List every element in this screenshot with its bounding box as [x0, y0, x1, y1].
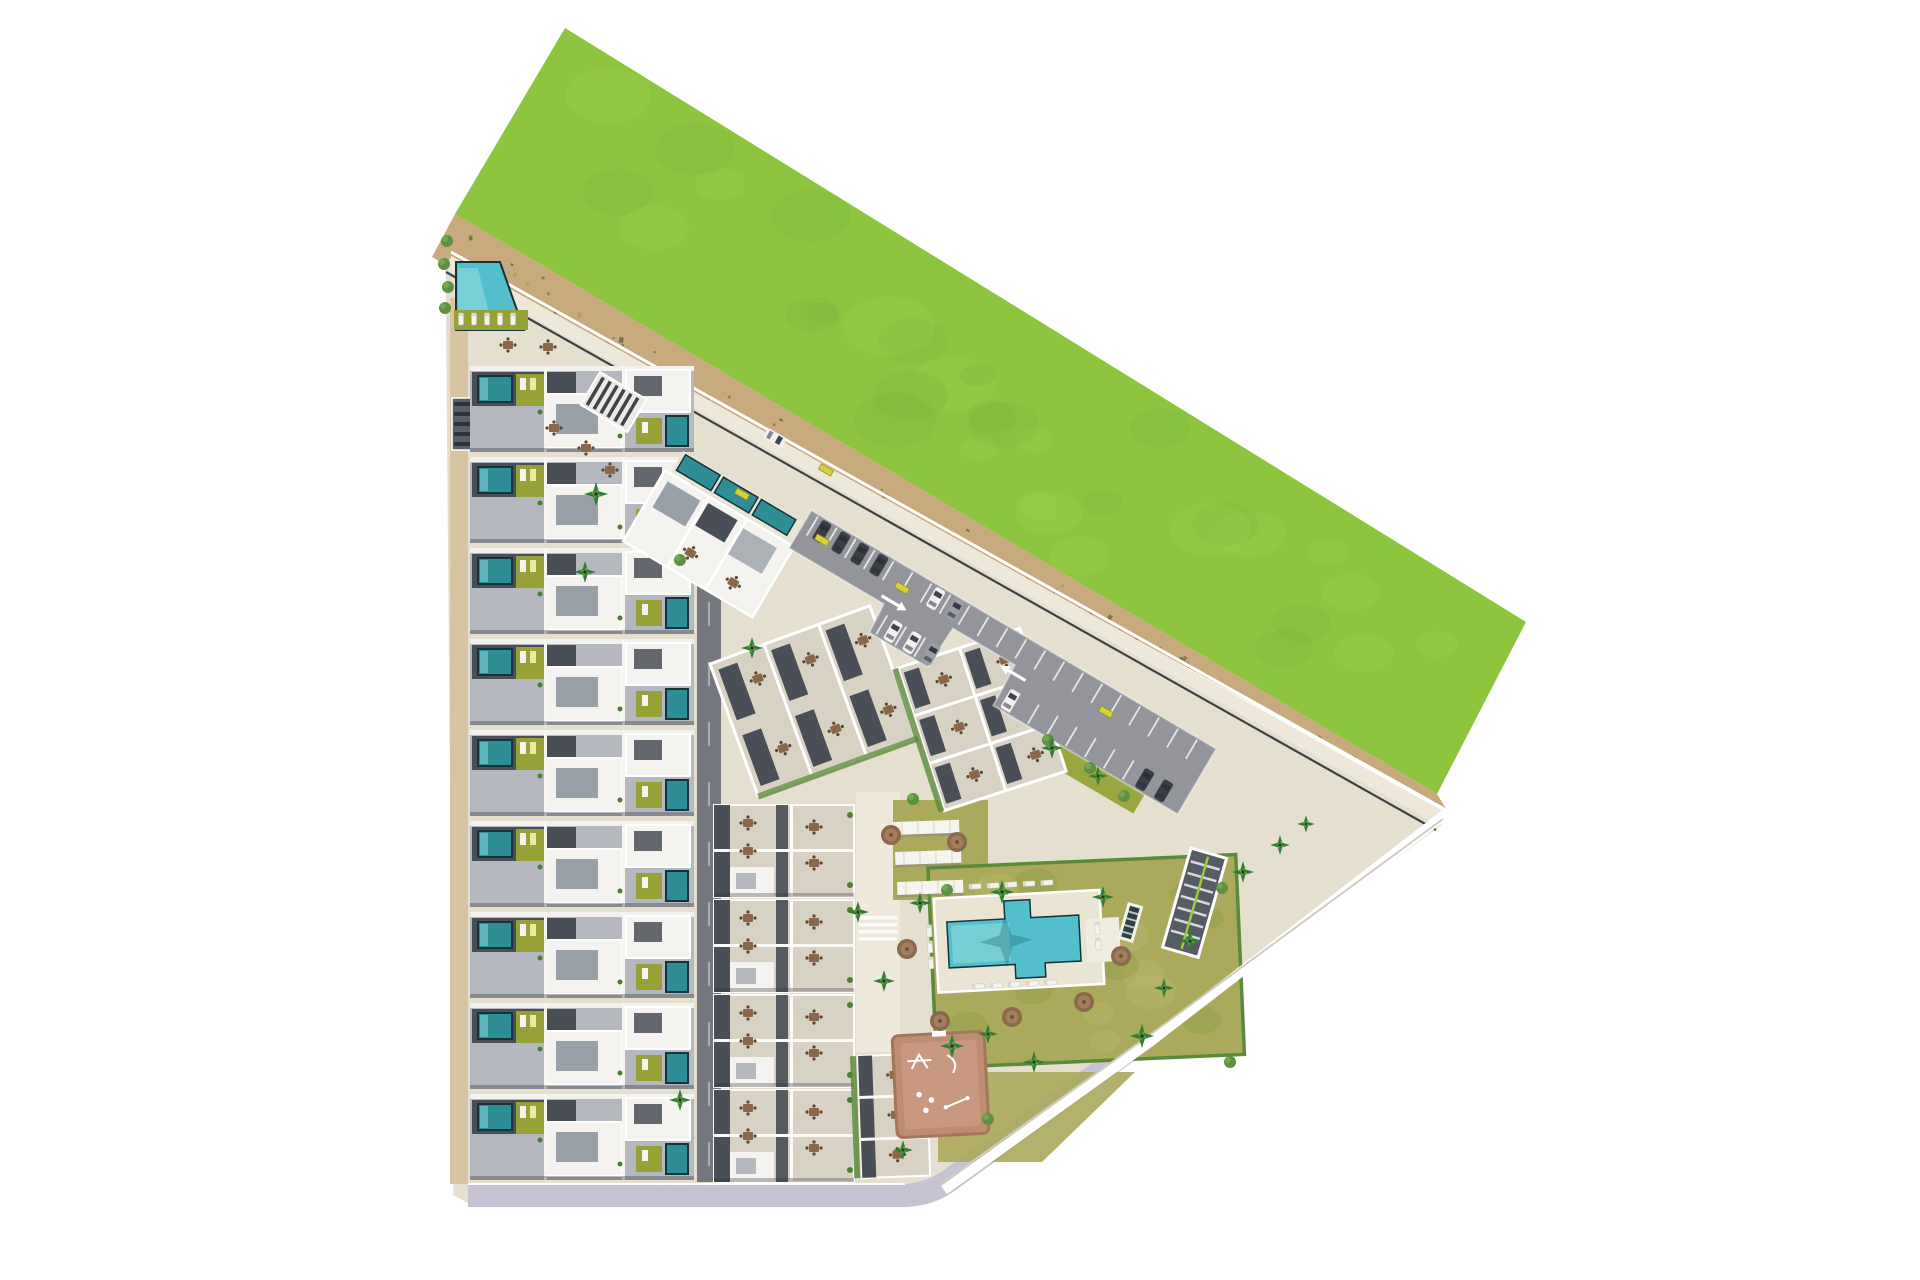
parasol-tree [1074, 992, 1094, 1012]
townhouse-row-inner [714, 805, 854, 897]
site-plan-render: Aerial 3D site-plan render of a coastal … [0, 0, 1920, 1280]
pergola-shade [895, 850, 962, 868]
garden-shrub [1084, 762, 1096, 774]
sun-lounger [1095, 922, 1101, 934]
sun-lounger [1008, 982, 1020, 988]
townhouse-row [470, 1094, 694, 1180]
parasol-tree [1111, 946, 1131, 966]
townhouse-row-inner [714, 1090, 854, 1182]
parasol-tree [897, 939, 917, 959]
sun-lounger [1041, 880, 1053, 886]
sun-lounger [1023, 881, 1035, 887]
screenshot-canvas: Aerial 3D site-plan render of a coastal … [0, 0, 1920, 1280]
sun-lounger [969, 884, 981, 890]
sun-lounger [1095, 938, 1101, 950]
townhouse-row [470, 730, 694, 816]
pergola-shade [893, 820, 960, 838]
corner-lawn [454, 310, 528, 330]
sun-lounger [511, 313, 516, 325]
sun-lounger [485, 313, 490, 325]
pergola-shade [897, 880, 964, 898]
pergola-shades [893, 820, 964, 898]
townhouse-row [470, 639, 694, 725]
sun-lounger [472, 313, 477, 325]
garden-shrub [907, 793, 919, 805]
sun-lounger [498, 313, 503, 325]
townhouse-row [470, 912, 694, 998]
garden-shrub [982, 1113, 994, 1125]
townhouse-row [470, 1003, 694, 1089]
garden-shrub [941, 884, 953, 896]
sun-lounger [928, 957, 934, 969]
sun-lounger [1026, 981, 1038, 987]
sun-lounger [990, 983, 1002, 989]
garden-shrub [1216, 882, 1228, 894]
sun-lounger [987, 883, 999, 889]
parasol-tree [947, 832, 967, 852]
sun-lounger [1005, 882, 1017, 888]
townhouse-row [470, 366, 694, 452]
sun-lounger [1044, 980, 1056, 986]
garden-shrub [438, 258, 450, 270]
sun-lounger [926, 925, 932, 937]
townhouse-row-inner [714, 900, 854, 992]
playground-gate [932, 1030, 946, 1037]
townhouse-row [470, 821, 694, 907]
sun-lounger [972, 984, 984, 990]
townhouse-row-inner [714, 995, 854, 1087]
garden-shrub [1118, 790, 1130, 802]
sun-lounger [459, 313, 464, 325]
garden-shrub [1224, 1056, 1236, 1068]
playground [892, 1028, 989, 1138]
parasol-tree [881, 825, 901, 845]
parasol-tree [1002, 1007, 1022, 1027]
garden-shrub [674, 554, 686, 566]
garden-shrub [439, 302, 451, 314]
garden-shrub [442, 281, 454, 293]
garden-shrub [441, 235, 453, 247]
parasol-tree [930, 1011, 950, 1031]
sun-lounger [927, 941, 933, 953]
